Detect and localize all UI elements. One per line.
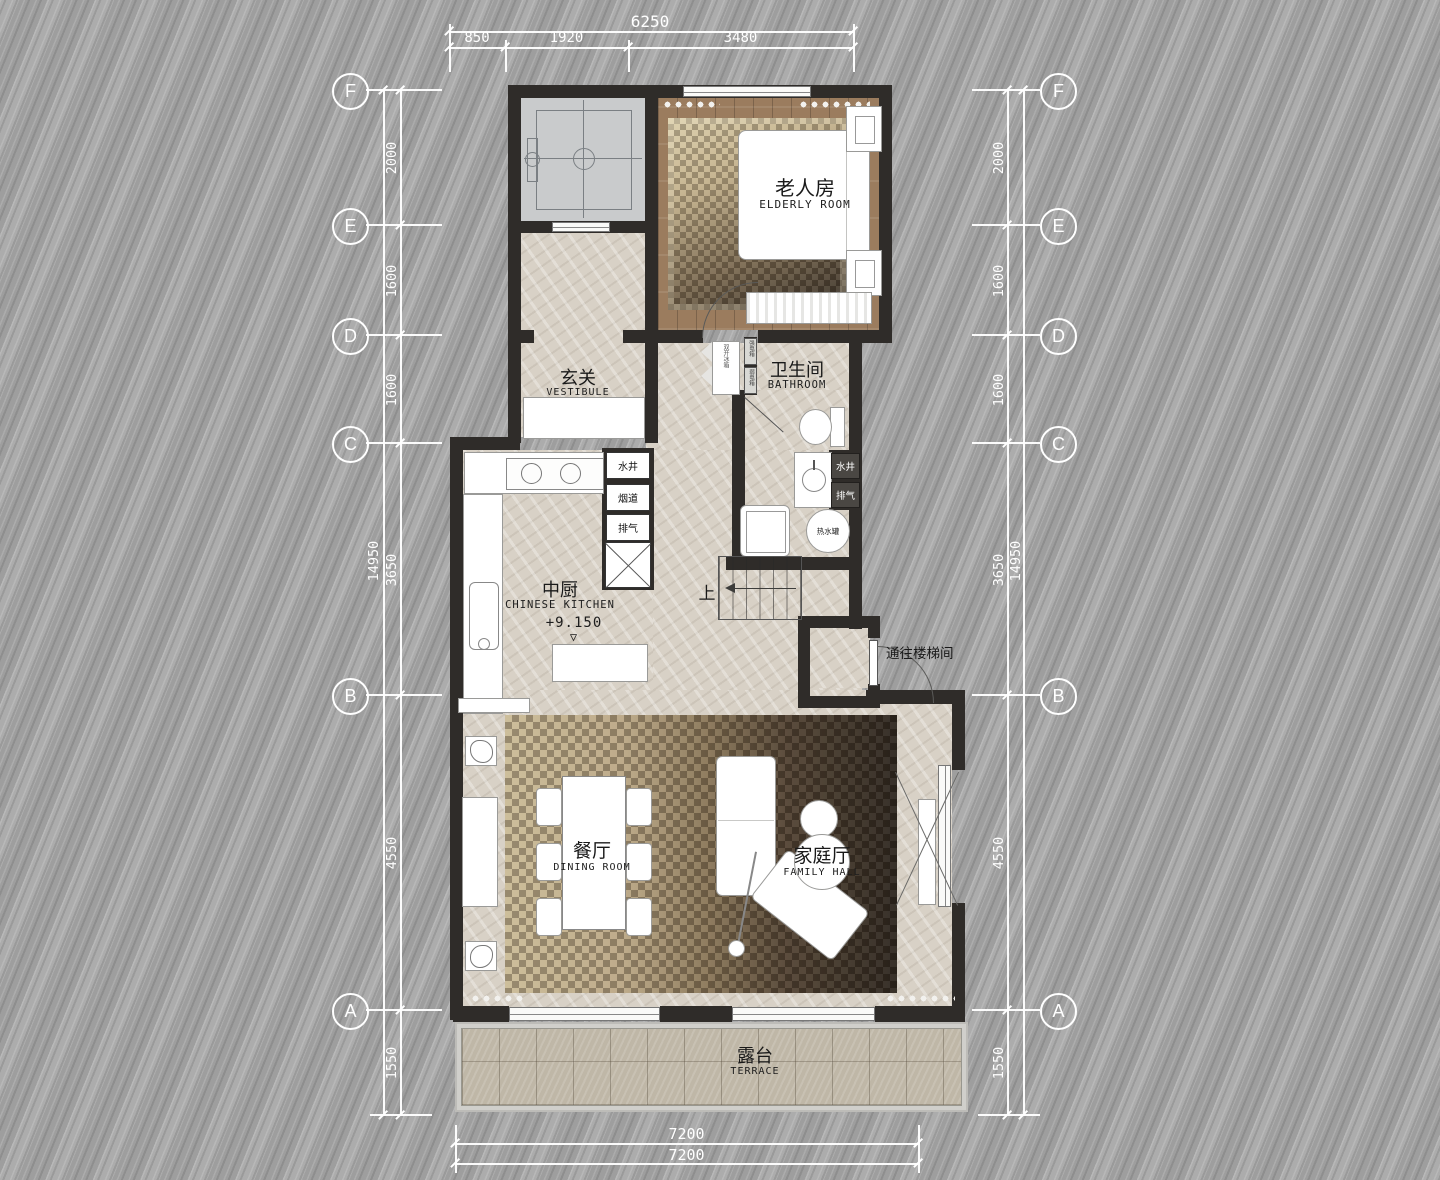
elevator-door (552, 222, 610, 232)
stairs-arrow-head (725, 583, 735, 593)
wall (868, 616, 880, 638)
water-well-kitchen-tag: 水井 (606, 452, 650, 479)
window-living-bottom-left (509, 1007, 660, 1021)
grid-dim-line-right-overall (1023, 90, 1025, 1115)
dim-left-1550: 1550 (384, 1033, 400, 1093)
terrace-label-en: TERRACE (705, 1066, 805, 1077)
family-hall-label-zh: 家庭厅 (772, 841, 872, 868)
grid-bubble-F-left: F (332, 73, 369, 110)
hot-water-tank: 热水罐 (806, 509, 850, 553)
wall (623, 330, 658, 343)
plant-icon (470, 740, 493, 763)
grid-dim-line-right-segments (1007, 90, 1009, 1115)
elderly-room-label-en: ELDERLY ROOM (745, 198, 865, 211)
grid-label-A: A (1052, 1001, 1064, 1022)
dim-top-seg-850: 850 (449, 30, 505, 46)
stair-lobby-floor (806, 626, 870, 688)
kitchen-island (552, 644, 648, 682)
grid-bubble-D-left: D (332, 318, 369, 355)
to-stairwell-label: 通往楼梯间 (886, 642, 954, 662)
toilet-bowl (799, 409, 832, 445)
exhaust-kitchen-tag: 排气 (606, 514, 650, 541)
nightstand-bottom-inner (855, 260, 875, 288)
grid-bubble-E-right: E (1040, 208, 1077, 245)
dim-right-3650: 3650 (991, 540, 1007, 600)
exhaust-kitchen-label: 排气 (618, 520, 638, 535)
grid-label-C: C (344, 434, 357, 455)
grid-bubble-A-right: A (1040, 993, 1077, 1030)
dining-chair (536, 898, 562, 936)
wall (645, 85, 658, 443)
grid-bubble-C-right: C (1040, 426, 1077, 463)
stairs-direction-line (734, 588, 796, 589)
elderly-room-label-zh: 老人房 (745, 172, 865, 201)
fridge-label: 双开冰箱 (721, 344, 730, 368)
exhaust-bath-tag: 排气 (831, 482, 860, 508)
washing-machine-inner (746, 511, 786, 553)
grid-bubble-A-left: A (332, 993, 369, 1030)
wall (450, 437, 520, 450)
dining-chair (626, 898, 652, 936)
grid-line-end-right (978, 1114, 1040, 1116)
wall (453, 1006, 509, 1022)
sideboard-left (462, 797, 498, 907)
grid-label-F: F (1053, 81, 1064, 102)
curtain-living-right (885, 993, 955, 1004)
terrace-label-zh: 露台 (705, 1042, 805, 1068)
toilet-tank (830, 407, 845, 447)
dim-left-1600a: 1600 (384, 251, 400, 311)
wall (508, 85, 521, 443)
hot-water-tank-label: 热水罐 (817, 526, 840, 537)
bathroom-label-en: BATHROOM (747, 379, 847, 391)
flue-tag: 烟道 (606, 484, 650, 511)
window-elderly-top (683, 86, 811, 97)
vestibule-label-en: VESTIBULE (528, 387, 628, 398)
grid-bubble-D-right: D (1040, 318, 1077, 355)
level-marker-icon: ▽ (524, 630, 624, 644)
vanity-faucet (813, 460, 815, 470)
ottoman-small (800, 800, 838, 838)
grid-label-F: F (345, 81, 356, 102)
dining-room-label-en: DINING ROOM (542, 862, 642, 873)
grid-bubble-F-right: F (1040, 73, 1077, 110)
grid-line-A-left (366, 1009, 442, 1011)
wall (758, 330, 892, 343)
water-well-bath-label: 水井 (836, 459, 855, 473)
sliding-door-living-bottom (732, 1007, 875, 1021)
dim-left-14950: 14950 (366, 531, 382, 591)
wall (952, 690, 965, 770)
living-console-top (458, 698, 530, 713)
dim-ext-line (918, 1125, 920, 1173)
grid-dim-line-left-overall (383, 90, 385, 1115)
fridge-door-swing-icon (701, 366, 712, 386)
curtain-living-left (470, 993, 525, 1004)
grid-label-C: C (1052, 434, 1065, 455)
dim-right-1600b: 1600 (991, 360, 1007, 420)
grid-label-D: D (344, 326, 357, 347)
dim-top-seg-1920: 1920 (505, 30, 628, 46)
dim-left-1600b: 1600 (384, 360, 400, 420)
kitchen-sink-drain (478, 638, 490, 650)
stairs-up-label: 上 (695, 579, 719, 604)
grid-label-D: D (1052, 326, 1065, 347)
grid-bubble-B-right: B (1040, 678, 1077, 715)
dim-top-seg-3480: 3480 (628, 30, 853, 46)
grid-bubble-E-left: E (332, 208, 369, 245)
grid-label-E: E (1052, 216, 1064, 237)
exhaust-bath-label: 排气 (836, 488, 855, 502)
grid-label-E: E (344, 216, 356, 237)
dim-left-4550: 4550 (384, 823, 400, 883)
fridge-door-swing-icon (701, 342, 712, 362)
dining-chair (626, 788, 652, 826)
dim-line-bottom-1 (455, 1143, 918, 1145)
dim-bottom-7200-a: 7200 (455, 1125, 918, 1143)
vanity-sink (802, 468, 826, 492)
dim-right-2000: 2000 (991, 128, 1007, 188)
water-well-bath-tag: 水井 (831, 453, 860, 479)
kitchen-level-label: +9.150 (524, 615, 624, 631)
grid-bubble-C-left: C (332, 426, 369, 463)
grid-line-B-left (366, 694, 442, 696)
sofa-seam (718, 820, 774, 821)
elevator-center-mark (573, 148, 595, 170)
curtain-elderly-left (662, 99, 720, 110)
dim-left-3650: 3650 (384, 540, 400, 600)
grid-label-B: B (344, 686, 356, 707)
elderly-bench (746, 292, 872, 324)
wall (508, 330, 534, 343)
grid-line-C-left (366, 442, 442, 444)
grid-bubble-B-left: B (332, 678, 369, 715)
nightstand-top-inner (855, 116, 875, 144)
grid-label-B: B (1052, 686, 1064, 707)
wall (660, 1006, 732, 1022)
grid-line-D-left (366, 334, 442, 336)
dim-bottom-7200-b: 7200 (455, 1146, 918, 1164)
dim-right-14950: 14950 (1008, 531, 1024, 591)
dim-right-4550: 4550 (991, 823, 1007, 883)
floor-lamp-base (728, 940, 745, 957)
kitchen-label-en: CHINESE KITCHEN (505, 599, 615, 611)
dim-top-total: 6250 (600, 12, 700, 31)
stove-burner (560, 463, 581, 484)
wall (875, 1006, 965, 1022)
grid-label-A: A (344, 1001, 356, 1022)
stove-burner (521, 463, 542, 484)
strong-elec-label: 强电箱 (747, 340, 755, 357)
elevator-counterweight-mark (525, 152, 540, 167)
flue-label: 烟道 (618, 490, 638, 505)
grid-line-F-left (366, 89, 442, 91)
vestibule-cabinet (523, 397, 645, 439)
dining-room-label-zh: 餐厅 (542, 836, 642, 863)
dim-left-2000: 2000 (384, 128, 400, 188)
grid-dim-line-left-segments (400, 90, 402, 1115)
wall (798, 616, 810, 708)
water-well-kitchen-label: 水井 (618, 458, 638, 473)
dim-right-1600a: 1600 (991, 251, 1007, 311)
family-hall-label-en: FAMILY HALL (772, 867, 872, 878)
floor-plan-canvas: 6250 850 1920 3480 7200 7200 F E D C B A… (0, 0, 1440, 1180)
grid-line-E-left (366, 224, 442, 226)
wall (450, 437, 463, 1020)
dim-line-top-segments (449, 47, 853, 49)
dining-chair (536, 788, 562, 826)
dim-right-1550: 1550 (991, 1033, 1007, 1093)
